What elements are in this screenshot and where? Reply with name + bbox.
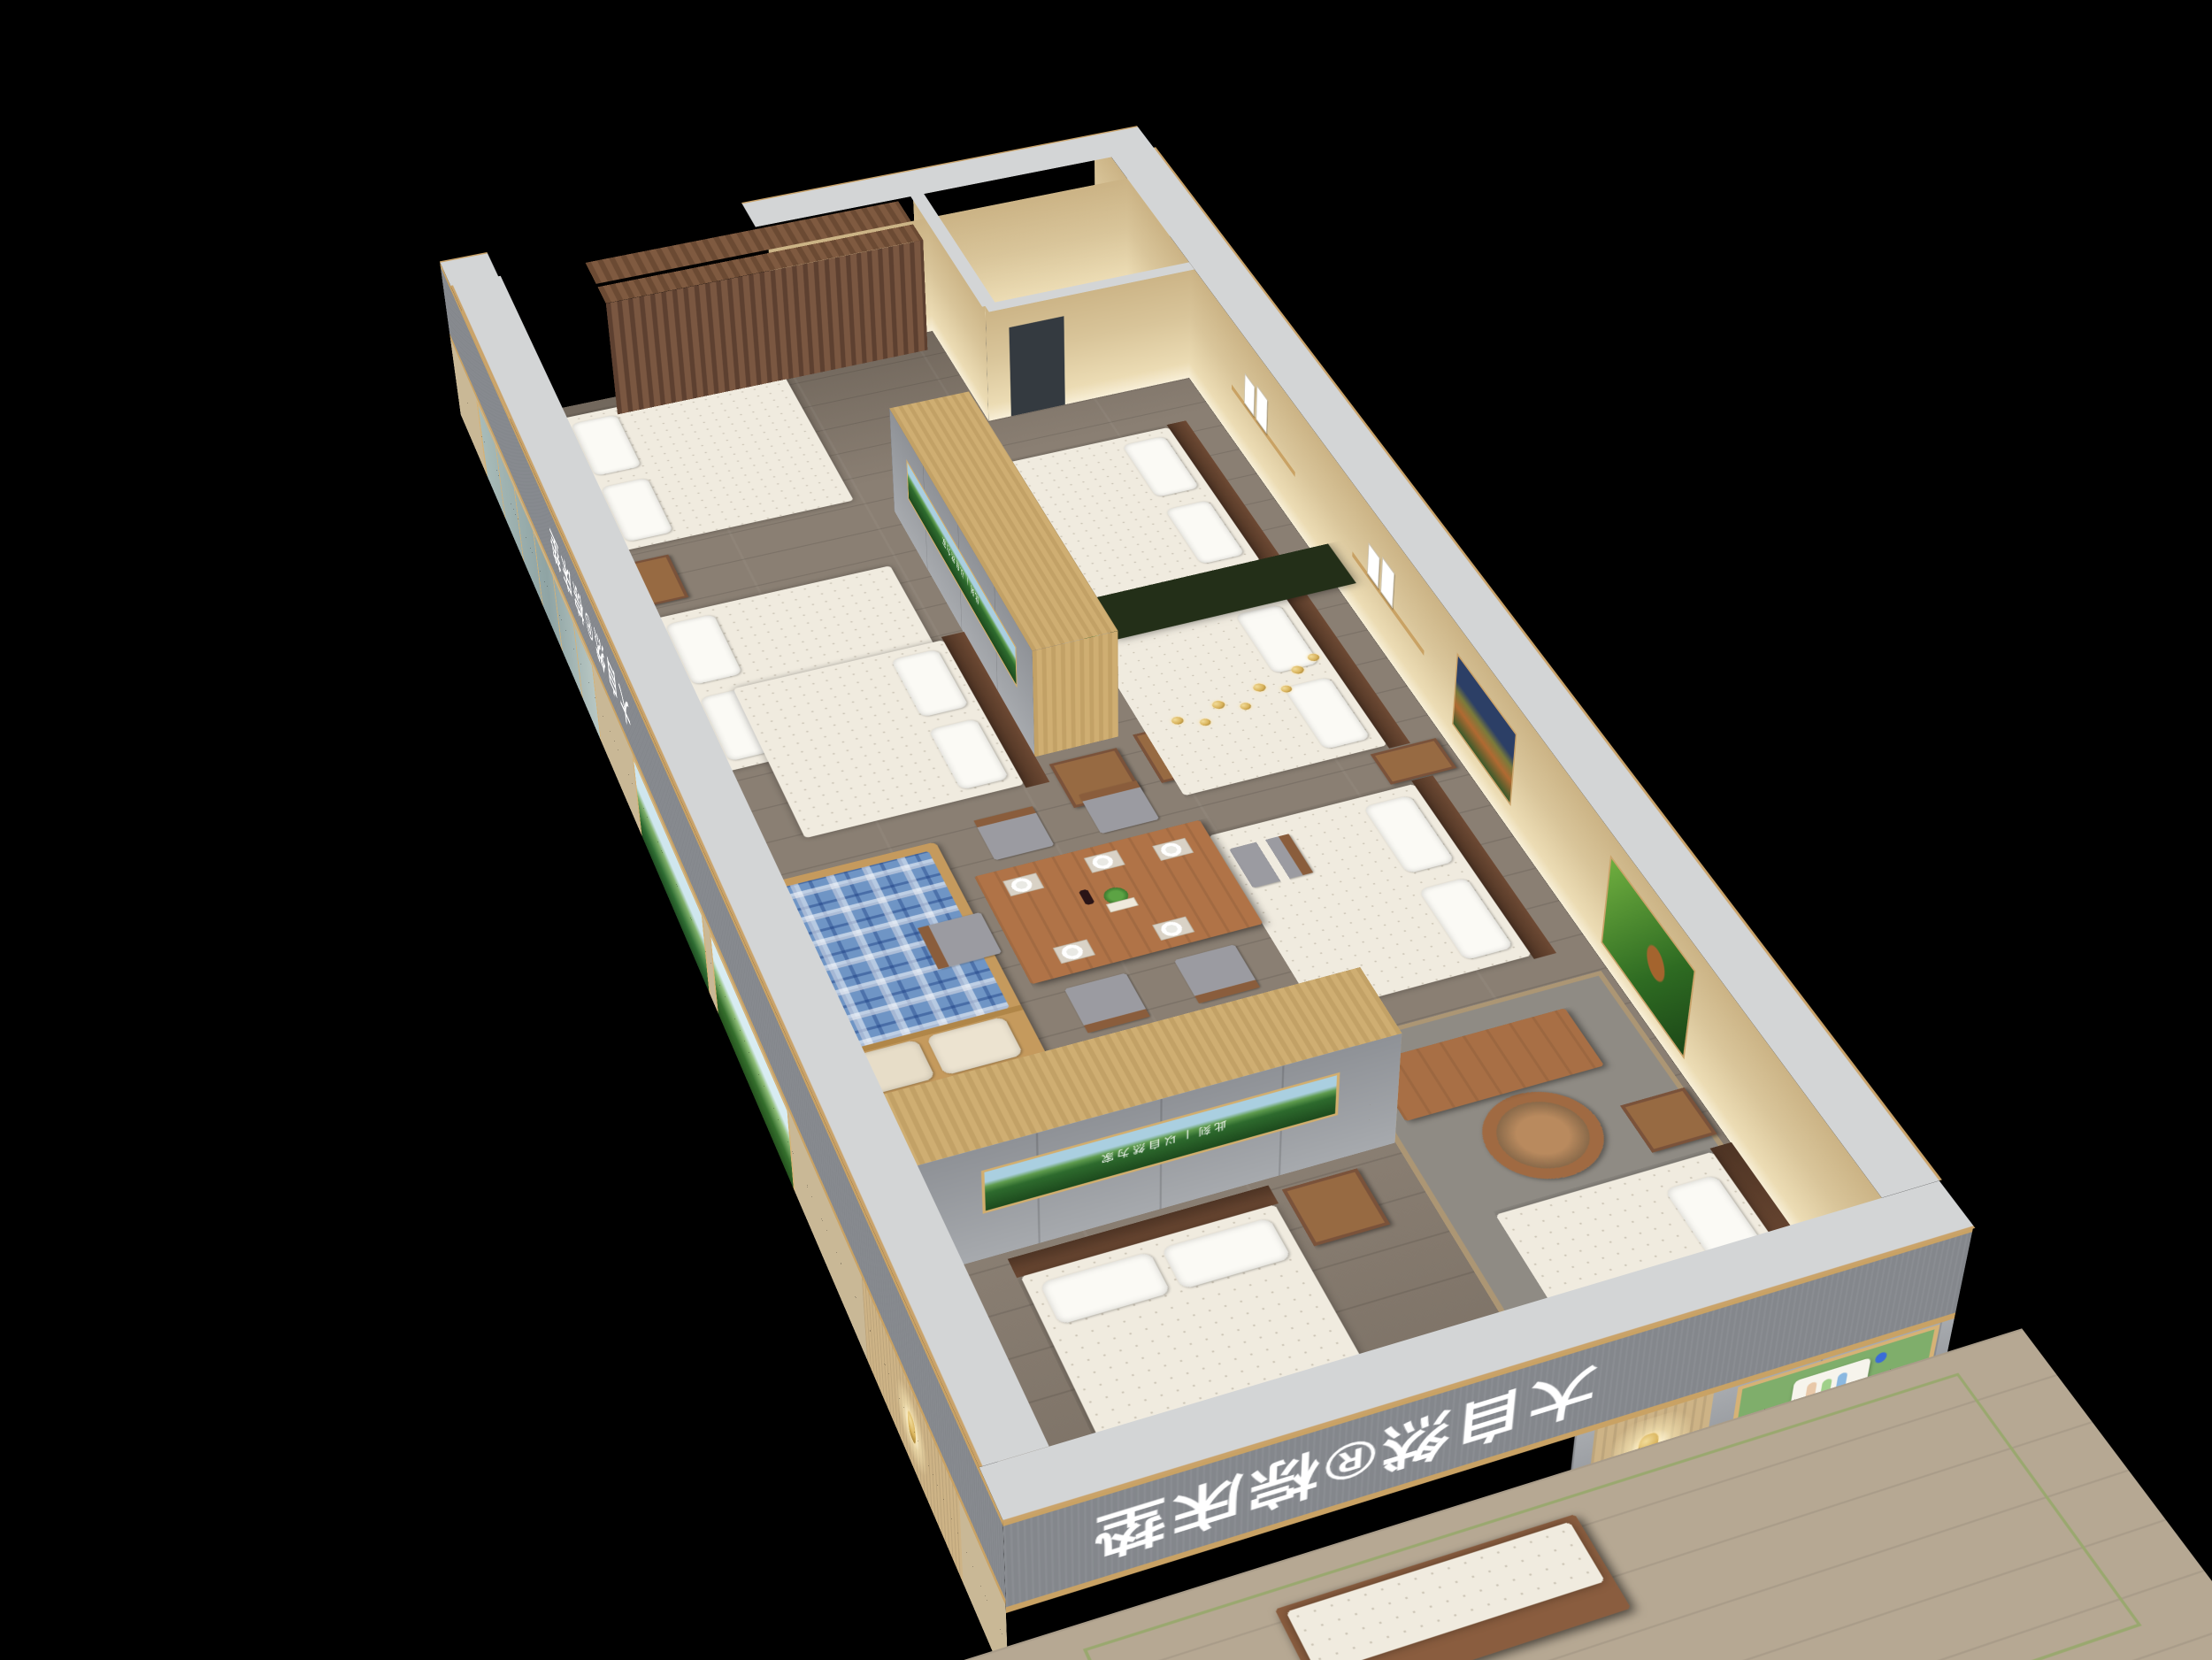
showroom-render-stage: 大自然®棕床垫 大自然®棕床垫 <box>0 0 2212 1660</box>
pendant-light <box>1289 665 1306 674</box>
pendant-light <box>1251 682 1268 692</box>
pendant-light <box>1306 653 1321 662</box>
poster-balloon <box>1874 1351 1887 1364</box>
picture-frame <box>1244 373 1255 417</box>
picture-frame <box>1256 385 1267 434</box>
banner-slogan-text: 此刻 | 以自然为家 <box>1098 1118 1226 1167</box>
niche-doorway-dark <box>1009 316 1064 416</box>
pendant-light <box>1279 685 1294 694</box>
showroom-3d-scene: 大自然®棕床垫 大自然®棕床垫 <box>456 237 1948 1647</box>
pendant-light <box>1239 702 1253 711</box>
pendant-light <box>1198 718 1212 726</box>
pendant-light <box>1210 700 1227 711</box>
picture-frame <box>1367 542 1380 589</box>
wine-bottle <box>1079 889 1095 905</box>
pendant-light <box>1170 716 1185 726</box>
picture-frame <box>1380 557 1394 609</box>
partition-upper-end-cap <box>1033 631 1118 757</box>
